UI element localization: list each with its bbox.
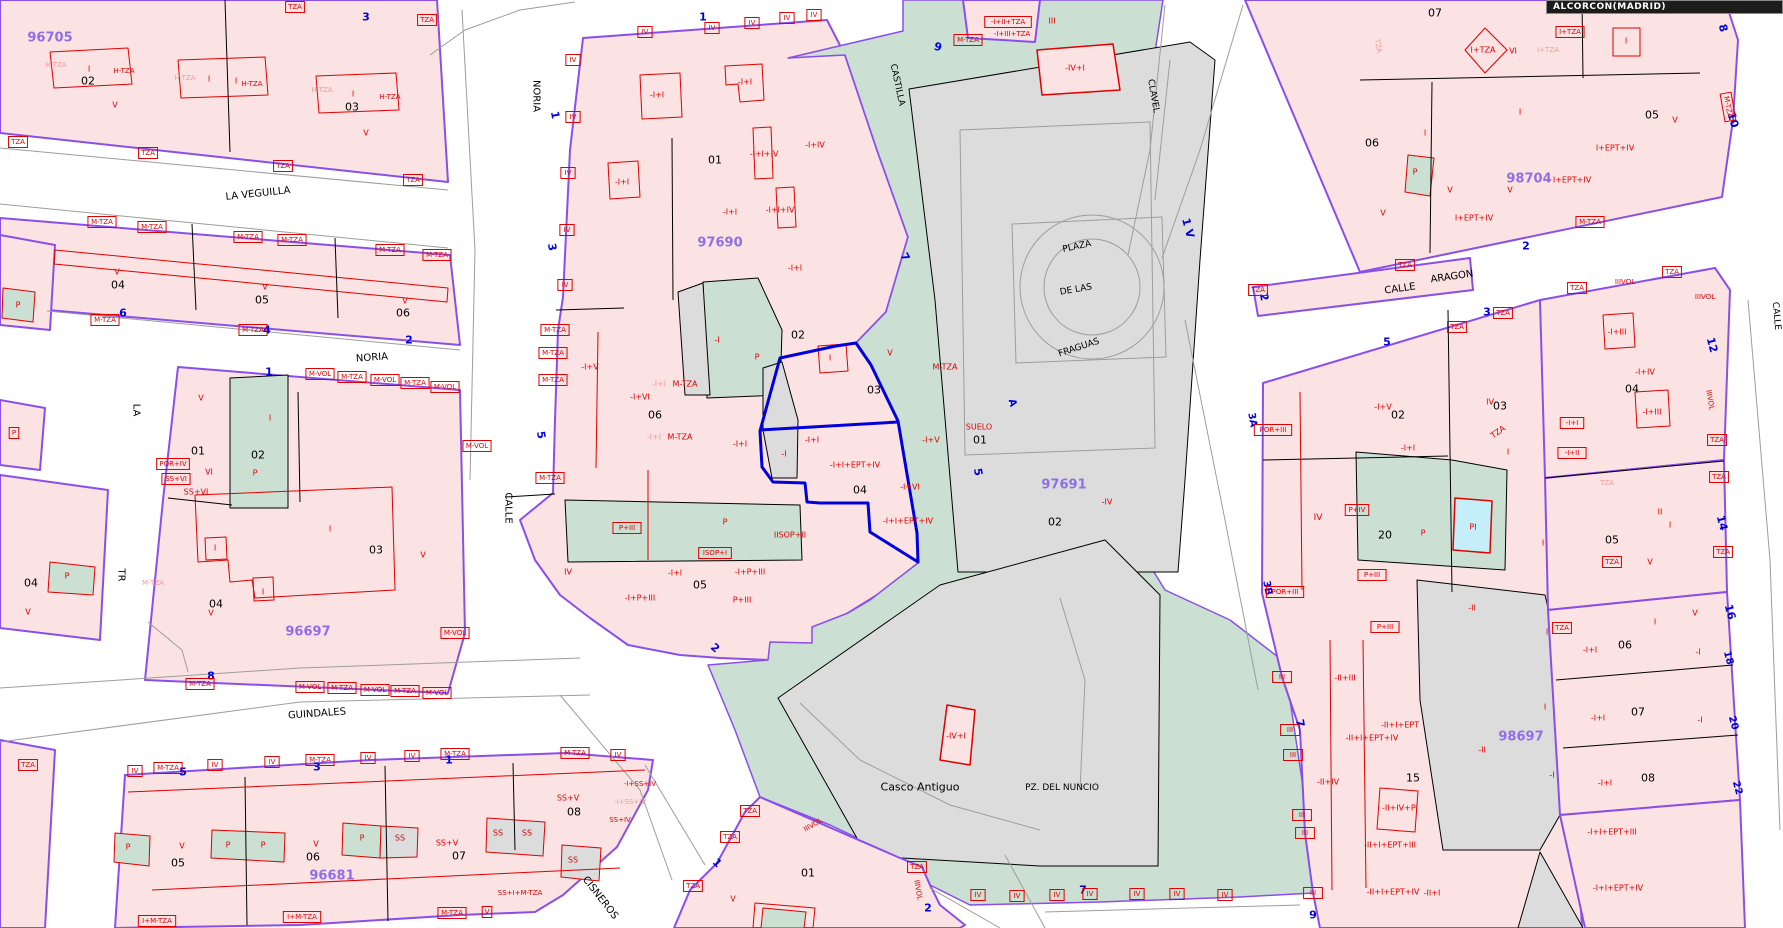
height-label: P [755,353,760,362]
street-name-label: NORIA [356,351,389,364]
street-name-label: LA [131,404,142,417]
height-label: -I+I [738,78,752,87]
height-label: IV [1134,890,1141,898]
parcel-number-label: 02 [251,449,265,462]
height-label: P [65,572,70,581]
height-label: II [1658,508,1663,517]
height-label: -I+I [1401,444,1415,453]
height-label: V [730,895,736,904]
height-label: M-VOL [434,383,456,391]
block-number-label: 98697 [1498,730,1543,745]
green-col-96697 [230,375,288,508]
height-label: -I+V [581,363,599,372]
height-label: V [208,609,214,618]
height-label: V [1672,116,1678,125]
parcel-number-label: 05 [1605,534,1619,547]
height-label: -I+SS+IV [614,798,646,806]
parcel-number-label: 02 [1391,409,1405,422]
height-label: V [402,297,408,306]
height-label: TZA [722,833,737,841]
height-label: IV [1087,890,1094,898]
parcel-number-label: 04 [24,577,38,590]
height-label: -I+P+III [625,594,656,603]
green-patio-96681b [211,830,285,862]
height-label: M-TZA [379,246,401,254]
height-label: -I+SS+IV [624,780,656,788]
height-label: IV [132,767,139,775]
house-number-label: 3 [545,242,559,252]
height-label: -I+VI [900,483,920,492]
parcel-number-label: 02 [791,329,805,342]
height-label: V [114,268,120,277]
height-label: -II+I+EPT+IV [1367,888,1420,897]
height-label: I+EPT+IV [1553,176,1592,185]
height-label: I [1424,129,1426,138]
green-patio-96681a [114,833,150,866]
parcel-number-label: 05 [171,857,185,870]
height-label: M-TZA [426,251,448,259]
parcel-number-label: 04 [111,279,125,292]
height-label: -I+I+EPT+IV [830,461,881,470]
height-label: -I+VI [630,393,650,402]
height-label: P+III [619,524,635,532]
height-label: TZA [1250,286,1265,294]
height-label: I [829,354,831,363]
parcel-number-label: 02 [1048,516,1062,529]
height-label: -I+IV [805,141,825,150]
height-label: IV [749,19,756,27]
height-label: I [1544,703,1546,712]
height-label: M-TZA [189,680,211,688]
curb [1748,300,1780,830]
height-label: IV [642,28,649,36]
street-name-label: Casco Antiguo [881,781,960,794]
height-label: IV [1486,398,1494,407]
curb [430,2,575,55]
parcel-number-label: 07 [452,850,466,863]
height-label: -II+I+EPT+III [1364,841,1416,850]
parcel-number-label: 07 [1428,7,1442,20]
height-label: IV [1314,513,1324,523]
height-label: H-TZA [174,74,195,82]
height-label: POR+III [1272,588,1299,596]
parcel-number-label: 06 [1365,137,1379,150]
height-label: IV [1014,892,1021,900]
green-patio-98704 [1405,155,1434,196]
block-number-label: 97691 [1041,478,1086,493]
height-label: IV [615,751,622,759]
height-label: H-TZA [241,80,262,88]
height-label: -I [781,450,786,459]
height-label: IV [1174,890,1181,898]
height-label: V [485,908,490,916]
height-label: PI [1469,523,1476,532]
height-label: M-TZA [242,326,264,334]
height-label: -I+I [647,433,661,442]
height-label: I [1654,618,1656,627]
height-label: -II+IV+PI [1382,804,1418,813]
street-name-label: LA VEGUILLA [225,185,291,203]
height-label: M-TZA [1579,218,1601,226]
height-label: -I+I+IV [766,206,795,215]
height-label: -I+I+EPT+IV [883,517,934,526]
height-label: SS+V [436,839,459,848]
height-label: TZA [1449,323,1464,331]
block-right-05[interactable] [1545,460,1727,610]
height-label: M-TZA [94,316,116,324]
height-label: -II+I [1424,889,1441,898]
height-label: M-TZA [281,236,303,244]
farleft-p-block[interactable] [0,400,45,470]
street-name-label: TR [116,567,127,581]
height-label: -I [1549,771,1554,780]
curb [462,10,475,480]
block-98704[interactable] [1245,0,1738,272]
block-number-label: 98704 [1506,172,1551,187]
height-label: III [1048,17,1055,26]
height-label: M-TZA [542,376,564,384]
parcel-number-label: 07 [1631,706,1645,719]
height-label: TZA [1711,473,1726,481]
height-label: ISOP+I [703,549,727,557]
farleft-04-block[interactable] [0,475,108,640]
height-label: SS [493,829,503,838]
height-label: TZA [140,149,155,157]
height-label: III [1279,673,1285,681]
height-label: TZA [1495,309,1510,317]
height-label: TZA [742,807,757,815]
height-label: M-VOL [364,686,386,694]
height-label: H-TZA [45,61,66,69]
height-label: P [261,841,266,850]
house-number-label: 2 [405,334,413,347]
height-label: I+M-TZA [142,917,172,925]
height-label: V [1692,609,1698,618]
height-label: I [262,588,264,597]
height-label: P [226,841,231,850]
block-number-label: 96697 [285,625,330,640]
height-label: M-TZA [539,474,561,482]
height-label: IV [570,113,577,121]
block-96697[interactable] [145,367,465,693]
height-label: IV [811,11,818,19]
height-label: -I+III+TZA [994,30,1031,38]
height-label: IV [570,56,577,64]
block-number-label: 96705 [27,31,72,46]
height-label: V [25,608,31,617]
height-label: M-VOL [299,683,321,691]
height-label: M-VOL [444,629,466,637]
height-label: V [179,842,185,851]
height-label: -I [714,336,719,345]
height-label: I [235,77,237,86]
height-label: -I+V [922,436,940,445]
height-label: -I+I+EPT+III [1587,828,1637,837]
height-label: IISOP+II [774,531,806,540]
house-number-label: 1 [548,110,562,120]
height-label: H-TZA [311,86,332,94]
height-label: III [1299,811,1305,819]
height-label: TZA [1715,548,1730,556]
parcel-number-label: 03 [345,101,359,114]
curb [1045,905,1300,912]
parcel-number-label: 01 [708,154,722,167]
parcel-number-label: 06 [306,851,320,864]
parcel-number-label: 05 [1645,109,1659,122]
height-label: V [1447,186,1453,195]
height-label: VI [1509,47,1517,56]
height-label: -I+I [650,91,664,100]
height-label: P+III [733,596,752,605]
green-bldg-block01 [761,908,806,928]
parcel-number-label: 01 [973,434,987,447]
cadastral-map[interactable]: 96705976909769196697966819870498697LA VE… [0,0,1783,928]
height-label: -II+IV [1317,778,1340,787]
height-label: P [1413,168,1418,177]
height-label: SS [568,856,578,865]
height-label: -I [1697,716,1702,725]
height-label: I [1625,37,1627,46]
height-label: TZA [1664,268,1679,276]
height-label: -I+IV [1635,368,1655,377]
height-label: IV [784,14,791,22]
parcel-number-label: 08 [567,806,581,819]
house-number-label: 3 [362,11,370,24]
height-label: POR+IV [159,460,187,468]
height-label: TZA [1569,284,1584,292]
height-label: -I+I [668,569,682,578]
height-label: I+TZA [1559,28,1581,36]
height-label: M-VOL [374,376,396,384]
height-label: IV [562,281,569,289]
height-label: -IV+I [946,732,966,741]
height-label: I [1669,521,1671,530]
height-label: IV [1222,891,1229,899]
height-label: M-TZA [668,433,693,442]
parcel-number-label: 15 [1406,772,1420,785]
municipality-title-bar: ALCORCON(MADRID) [1546,0,1783,14]
height-label: -I+I [1598,779,1612,788]
house-number-label: 9 [1309,909,1317,922]
height-label: M-TZA [441,909,463,917]
height-label: I [269,414,271,423]
height-label: -I+III [1642,408,1661,417]
height-label: M-VOL [426,689,448,697]
parcel-number-label: 06 [1618,639,1632,652]
height-label: P [723,518,728,527]
height-label: V [363,129,369,138]
height-label: IV [564,226,571,234]
height-label: IV [409,752,416,760]
height-label: -I+I [652,380,666,389]
parcel-number-label: 02 [81,75,95,88]
height-label: I+TZA [1471,46,1496,55]
height-label: SUELO [966,423,992,432]
height-label: I [88,65,90,74]
parcel-number-label: 05 [693,579,707,592]
parcel-number-label: 03 [369,544,383,557]
height-label: -I [1695,648,1700,657]
height-label: M-TZA [444,750,466,758]
height-label: P+III [1377,623,1393,631]
parcel-number-label: 06 [648,409,662,422]
cadastral-map-viewport: 96705976909769196697966819870498697LA VE… [0,0,1783,928]
height-label: SS+VI [165,475,187,483]
height-label: H-TZA [113,67,134,75]
parcel-number-label: 01 [801,867,815,880]
height-label: -II+III [1334,674,1355,683]
height-label: M-TZA [933,363,958,372]
house-number-label: 5 [1383,336,1391,349]
height-label: -I+P+III [735,568,766,577]
height-label: TZA [287,3,302,11]
height-label: TZA [275,162,290,170]
parcel-number-label: 20 [1378,529,1392,542]
height-label: VI [205,468,213,477]
parcel-number-label: 03 [867,384,881,397]
height-label: TZA [1709,436,1724,444]
height-label: -II [1478,746,1486,755]
height-label: III [1290,751,1296,759]
height-label: I [352,90,354,99]
height-label: P+III [1364,571,1380,579]
height-label: SS+V [557,794,580,803]
house-number-label: 5 [179,766,187,779]
street-name-label: GUINDALES [288,706,347,721]
height-label: -I+I [1591,714,1605,723]
height-label: -I+I [788,264,802,273]
height-label: -I+III [1607,328,1626,337]
height-label: I [329,525,331,534]
height-label: M-TZA [237,233,259,241]
block-number-label: 97690 [697,236,742,251]
house-number-label: 3 [1483,306,1491,319]
height-label: P [360,834,365,843]
height-label: M-TZA [157,764,179,772]
municipality-title: ALCORCON(MADRID) [1553,2,1666,12]
house-number-label: 2 [924,902,932,915]
height-label: I [1546,628,1548,637]
height-label: I [1519,108,1521,117]
height-label: IIIVOL [1695,293,1715,301]
house-number-label: 1 [265,366,273,379]
height-label: TZA [20,761,35,769]
height-label: IIIVOL [1615,278,1635,286]
height-label: TZA [909,863,924,871]
parcel-number-label: 01 [191,445,205,458]
height-label: SS+IV [609,816,631,824]
height-label: IV [975,891,982,899]
height-label: III [1302,829,1308,837]
height-label: M-TZA [91,218,113,226]
height-label: III [1287,726,1293,734]
height-label: SS+VI [184,488,209,497]
height-label: M-VOL [309,370,331,378]
block-right-bottom[interactable] [1560,800,1745,928]
height-label: P [1421,529,1426,538]
house-number-label: 5 [534,430,548,440]
house-number-label: 6 [119,307,127,320]
height-label: III [1310,889,1316,897]
height-label: I+TZA [1537,46,1559,54]
parcel-number-label: 08 [1641,772,1655,785]
height-label: -IV+I [1065,64,1085,73]
parcel-number-label: 03 [1493,400,1507,413]
height-label: IV [1054,891,1061,899]
height-label: -I+I+EPT+IV [1593,884,1644,893]
height-label: -I+I [1583,646,1597,655]
height-label: IV [564,568,572,577]
parcel-number-label: 04 [1625,383,1639,396]
height-label: -II+I+EPT [1381,721,1419,730]
house-number-label: 2 [1522,240,1530,253]
height-label: V [313,840,319,849]
height-label: M-TZA [404,379,426,387]
height-label: SS+I+M-TZA [498,889,543,897]
height-label: V [1507,186,1513,195]
height-label: V [1380,209,1386,218]
parcel-number-label: 06 [396,307,410,320]
height-label: M-TZA [544,326,566,334]
height-label: TZA [1604,558,1619,566]
height-label: V [1647,558,1653,567]
street-name-label: PZ. DEL NUNCIO [1025,783,1099,793]
height-label: I+EPT+IV [1455,214,1494,223]
height-label: -IV [1102,498,1113,507]
height-label: M-TZA [309,756,331,764]
green-patio-fl2 [48,562,95,595]
parcel-number-label: 05 [255,294,269,307]
height-label: I [1542,539,1544,548]
parcel-number-label: 04 [853,484,867,497]
gray-basement-area[interactable] [1417,580,1560,850]
height-label: M-TZA [142,579,164,587]
height-label: TZA [1599,479,1614,487]
height-label: I+M-TZA [287,913,317,921]
height-label: M-TZA [394,687,416,695]
height-label: M-TZA [673,380,698,389]
height-label: TZA [10,138,25,146]
height-label: -I+I+IV [750,150,779,159]
height-label: M-TZA [341,373,363,381]
street-name-label: NORIA [531,80,542,112]
height-label: P [126,843,131,852]
house-number-label: 3A [1245,412,1258,429]
height-label: SS [395,834,405,843]
height-label: P [253,469,258,478]
plaza-fraguas-gray[interactable] [909,42,1215,572]
height-label: TZA [405,176,420,184]
height-label: P [12,429,16,437]
block-number-label: 96681 [309,869,354,884]
height-label: H-TZA [379,93,400,101]
height-label: -I+I [805,436,819,445]
height-label: POR+III [1260,426,1287,434]
height-label: TZA [1554,624,1569,632]
street-name-label: CALLE [1770,302,1782,331]
height-label: V [112,101,118,110]
height-label: M-TZA [564,749,586,757]
height-label: -I+I [733,440,747,449]
height-label: IV [709,24,716,32]
height-label: V [887,349,893,358]
height-label: M-VOL [466,442,488,450]
height-label: SS [522,829,532,838]
height-label: P [16,301,21,310]
height-label: V [420,551,426,560]
height-label: IV [365,754,372,762]
height-label: TZA [1397,261,1412,269]
